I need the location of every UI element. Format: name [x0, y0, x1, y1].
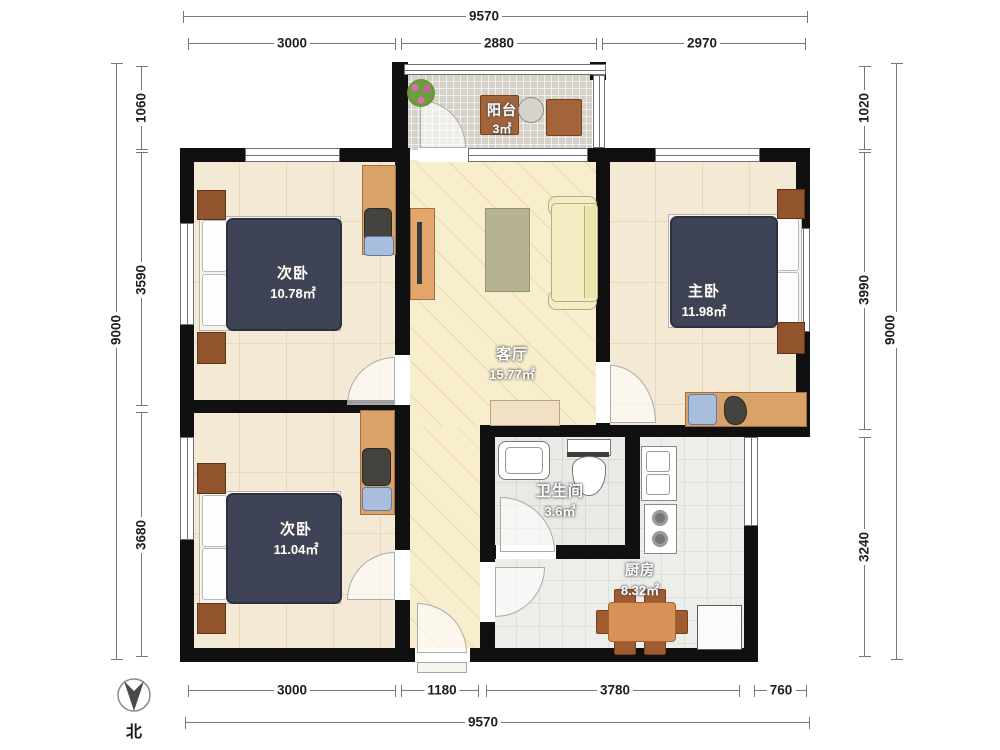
dim-label-left-seg1: 1060	[134, 90, 149, 126]
wall-balcony-left	[392, 62, 408, 162]
room-name: 卫生间	[516, 480, 604, 501]
coffee-table	[485, 208, 530, 292]
dining-table	[608, 602, 676, 642]
dim-label-top-seg3: 2970	[684, 36, 720, 51]
nightstand	[197, 190, 226, 220]
dim-label-right-seg2: 3990	[857, 272, 872, 308]
dim-label-bottom-seg3: 3780	[597, 683, 633, 698]
door-opening	[395, 550, 410, 600]
tv	[417, 222, 422, 284]
room-name: 客厅	[468, 343, 556, 364]
dim-label-bottom-total: 9570	[465, 715, 501, 730]
room-label-bedroom-top-left: 次卧 10.78㎡	[250, 262, 336, 302]
dim-label-top-seg2: 2880	[481, 36, 517, 51]
door-opening	[480, 562, 495, 622]
room-area: 15.77㎡	[468, 364, 556, 383]
room-area: 8.32㎡	[596, 580, 684, 599]
sink-bowl	[646, 474, 670, 495]
room-label-bedroom-bottom-left: 次卧 11.04㎡	[252, 518, 340, 558]
fridge	[697, 605, 742, 650]
dim-label-right-seg3: 3240	[857, 529, 872, 565]
room-area: 3㎡	[460, 120, 544, 137]
wall	[625, 437, 640, 557]
dim-label-left-total: 9000	[109, 312, 124, 348]
north-arrow-icon	[110, 674, 156, 720]
dining-chair	[644, 640, 666, 655]
room-label-bathroom: 卫生间 3.6㎡	[516, 480, 604, 520]
dim-line-right-total	[896, 63, 897, 660]
dim-label-bottom-seg1: 3000	[274, 683, 310, 698]
nightstand	[197, 603, 226, 634]
window-balcony-rail	[593, 75, 605, 148]
chair	[688, 394, 717, 425]
door-opening	[596, 362, 610, 423]
room-area: 10.78㎡	[250, 283, 336, 302]
room-area: 3.6㎡	[516, 501, 604, 520]
door-opening	[395, 355, 410, 405]
room-label-living-room: 客厅 15.77㎡	[468, 343, 556, 383]
chair	[362, 487, 392, 511]
dim-label-top-total: 9570	[466, 9, 502, 24]
room-name: 厨房	[596, 560, 684, 580]
window	[180, 437, 194, 540]
sink-basin	[505, 447, 543, 474]
floor-plan: 9570 3000 2880 2970 9000 1060 3590 3680 …	[0, 0, 1000, 750]
wall	[395, 413, 410, 662]
window	[245, 148, 340, 162]
tv-stand	[410, 208, 435, 300]
room-name: 主卧	[660, 280, 748, 301]
room-label-kitchen: 厨房 8.32㎡	[596, 560, 684, 599]
nightstand	[197, 332, 226, 364]
room-name: 次卧	[252, 518, 340, 539]
dining-chair	[614, 640, 636, 655]
dim-label-left-seg2: 3590	[134, 262, 149, 298]
room-area: 11.04㎡	[252, 539, 340, 558]
door-opening	[418, 148, 468, 162]
window-balcony	[468, 148, 588, 162]
sofa-back	[584, 206, 596, 298]
room-label-balcony: 阳台 3㎡	[460, 100, 544, 137]
console-table	[490, 400, 560, 426]
dim-label-left-seg3: 3680	[134, 517, 149, 553]
window	[655, 148, 760, 162]
stove	[644, 504, 677, 554]
dim-label-right-total: 9000	[883, 312, 898, 348]
pillow	[202, 495, 227, 547]
room-name: 次卧	[250, 262, 336, 283]
burner	[652, 510, 668, 526]
dim-label-right-seg1: 1020	[857, 90, 872, 126]
room-label-master-bedroom: 主卧 11.98㎡	[660, 280, 748, 320]
pillow	[202, 548, 227, 600]
window-balcony-rail	[404, 64, 606, 75]
nightstand	[777, 322, 805, 354]
room-name: 阳台	[460, 100, 544, 120]
bathroom-sink	[498, 441, 550, 480]
burner	[652, 531, 668, 547]
window	[744, 437, 758, 526]
chair	[364, 236, 394, 256]
balcony-chair	[546, 99, 582, 136]
nightstand	[777, 189, 805, 219]
pillow	[202, 220, 227, 272]
desk-chair	[362, 448, 391, 486]
nightstand	[197, 463, 226, 494]
dim-label-bottom-seg2: 1180	[424, 683, 459, 698]
plant	[407, 79, 435, 107]
dim-label-bottom-seg4: 760	[767, 683, 796, 698]
wall	[744, 526, 758, 662]
room-area: 11.98㎡	[660, 301, 748, 320]
entry-step	[417, 662, 467, 673]
bag	[724, 396, 747, 425]
dim-label-top-seg1: 3000	[274, 36, 310, 51]
pillow	[202, 274, 227, 326]
window	[180, 223, 194, 325]
kitchen-sink-counter	[641, 446, 677, 501]
sink-bowl	[646, 451, 670, 472]
dim-line-left-total	[116, 63, 117, 660]
north-label: 北	[126, 718, 142, 742]
